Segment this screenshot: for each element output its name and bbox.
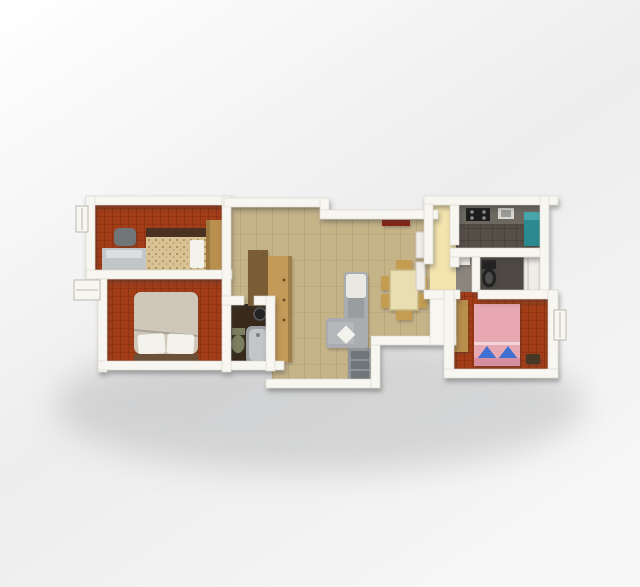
- storage-drawer-3: [351, 371, 369, 379]
- sofa-cushion-white: [346, 274, 366, 298]
- toilet-tank-small: [232, 328, 245, 335]
- wall: [266, 379, 380, 388]
- wall: [444, 290, 454, 378]
- pillow-left: [137, 333, 165, 355]
- toilet-main-seat: [485, 272, 493, 284]
- cooktop: [466, 208, 490, 221]
- wardrobe-knob: [283, 279, 286, 282]
- bathtub-drain: [256, 333, 260, 337]
- floor-plan-render: [0, 0, 640, 587]
- wall: [424, 196, 558, 205]
- dining-chair-top: [396, 260, 412, 269]
- dining-table: [390, 270, 418, 310]
- desk-chair: [114, 228, 136, 246]
- dining-chair-left-1: [381, 276, 389, 290]
- washbasin-main: [458, 256, 470, 265]
- pillow-right: [166, 333, 194, 354]
- wardrobe-tall-edge: [288, 256, 292, 362]
- burner: [470, 216, 474, 220]
- wall: [444, 369, 558, 378]
- refrigerator-teal-top: [524, 212, 540, 220]
- wardrobe-knob: [283, 319, 286, 322]
- wardrobe-bedroom1-edge: [206, 220, 210, 272]
- bed-pillow-white: [190, 240, 204, 268]
- wall: [478, 290, 558, 299]
- wall: [86, 196, 234, 205]
- nightstand: [526, 354, 540, 364]
- shelf-unit-1: [416, 232, 425, 258]
- wall: [86, 270, 232, 279]
- toilet-main-tank: [482, 260, 496, 269]
- wall: [98, 361, 284, 370]
- floor-plan-canvas: [0, 0, 640, 587]
- wall: [450, 257, 459, 267]
- wall: [472, 257, 480, 292]
- wall: [224, 198, 329, 207]
- bed-headboard: [146, 228, 206, 237]
- wall: [424, 204, 433, 264]
- wardrobe-knob: [283, 299, 286, 302]
- wall: [450, 205, 459, 245]
- toilet-small-icon: [232, 335, 245, 353]
- bedroom-bottom-left-furniture: [134, 292, 198, 363]
- burner: [482, 210, 486, 214]
- bed-pink-sheet-line: [474, 342, 520, 345]
- storage-drawer-2: [351, 361, 369, 369]
- floor-plan: [74, 196, 566, 388]
- wall: [371, 342, 380, 388]
- dining-chair-left-2: [381, 294, 389, 308]
- wall: [450, 248, 549, 257]
- wall: [222, 196, 231, 372]
- shelf-unit-2: [416, 262, 425, 290]
- wall: [540, 196, 549, 293]
- burner: [470, 210, 474, 214]
- wall: [266, 296, 275, 371]
- storage-drawer-1: [351, 351, 369, 359]
- shower-unit: [524, 256, 540, 292]
- tv-panel: [382, 220, 410, 226]
- dining-chair-bottom: [396, 311, 412, 320]
- wall: [222, 296, 244, 305]
- wall: [320, 210, 438, 219]
- kitchen-sink-basin: [501, 210, 511, 217]
- bed-pink-headboard: [474, 358, 520, 366]
- washbasin-icon: [254, 308, 266, 320]
- dressing-table-top: [106, 250, 142, 258]
- burner: [482, 216, 486, 220]
